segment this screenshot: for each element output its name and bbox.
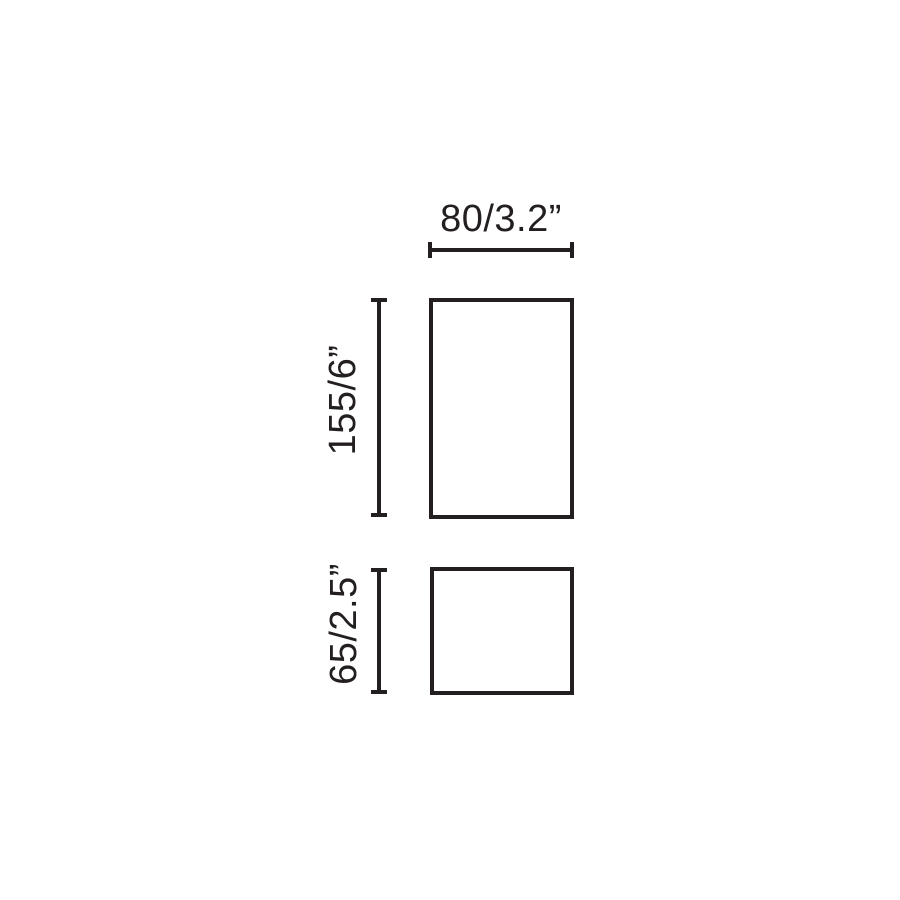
dimension-bar <box>377 568 381 694</box>
base-height-dimension-line <box>371 568 387 694</box>
dimension-end-tick <box>570 242 574 258</box>
width-dimension-line <box>428 242 574 258</box>
dimension-bar <box>377 298 381 517</box>
base-outline <box>430 567 574 695</box>
dimension-end-tick <box>371 690 387 694</box>
body-height-dimension-line <box>371 298 387 517</box>
base-height-dimension-label: 65/2.5” <box>322 534 366 714</box>
width-dimension-label: 80/3.2” <box>428 197 574 241</box>
dimension-end-tick <box>371 513 387 517</box>
body-height-dimension-label: 155/6” <box>321 290 365 510</box>
body-outline <box>429 298 574 519</box>
dimension-bar <box>428 248 574 252</box>
dimension-diagram: 80/3.2” 155/6” 65/2.5” <box>0 0 900 900</box>
